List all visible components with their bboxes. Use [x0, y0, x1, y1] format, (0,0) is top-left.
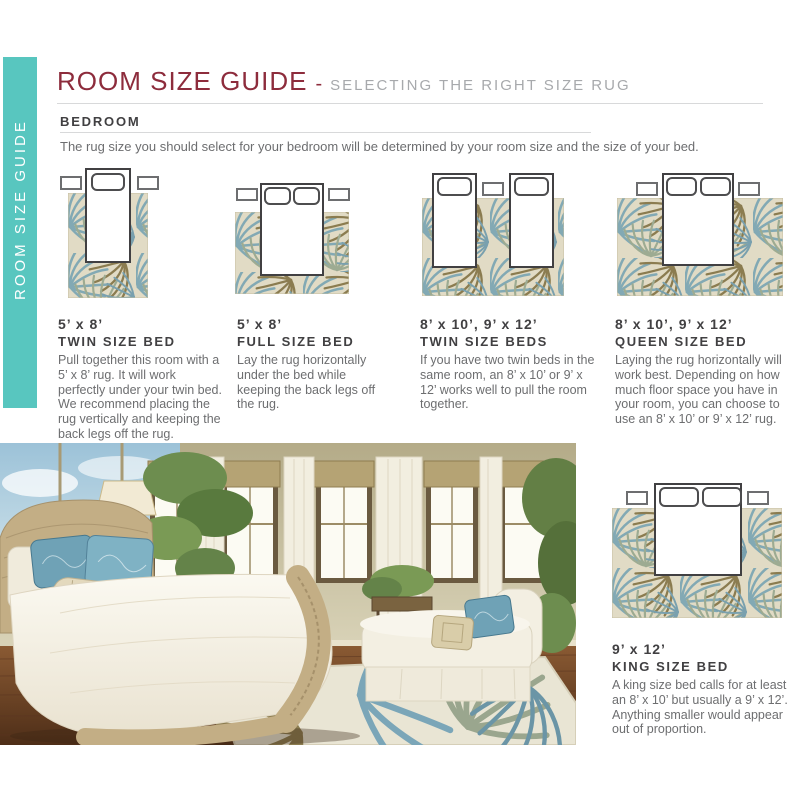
pillow-icon — [437, 177, 472, 196]
pillow-icon — [264, 187, 291, 205]
pillow-icon — [659, 487, 699, 507]
nightstand-icon — [738, 182, 760, 196]
guide-description: If you have two twin beds in the same ro… — [420, 353, 598, 412]
bed-type-label: KING SIZE BED — [612, 659, 798, 674]
rug-size-label: 9’ x 12’ — [612, 641, 798, 657]
section-divider — [60, 132, 591, 133]
nightstand-icon — [747, 491, 769, 505]
pillow-icon — [702, 487, 742, 507]
guide-description: Laying the rug horizontally will work be… — [615, 353, 797, 427]
bed-type-label: FULL SIZE BED — [237, 334, 387, 349]
page: ROOM SIZE GUIDE ROOM SIZE GUIDE - SELECT… — [0, 0, 800, 800]
nightstand-icon — [137, 176, 159, 190]
rug-size-label: 8’ x 10’, 9’ x 12’ — [420, 316, 598, 332]
guide-queen: 8’ x 10’, 9’ x 12’ QUEEN SIZE BED Laying… — [615, 316, 797, 427]
rug-size-label: 8’ x 10’, 9’ x 12’ — [615, 316, 797, 332]
bed-type-label: QUEEN SIZE BED — [615, 334, 797, 349]
side-tab-label: ROOM SIZE GUIDE — [12, 119, 29, 300]
nightstand-icon — [60, 176, 82, 190]
nightstand-icon — [236, 188, 258, 201]
pillow-icon — [666, 177, 697, 196]
pillow-icon — [514, 177, 549, 196]
guide-description: A king size bed calls for at least an 8’… — [612, 678, 798, 737]
pillow-icon — [293, 187, 320, 205]
section-heading: BEDROOM — [60, 114, 141, 129]
nightstand-icon — [626, 491, 648, 505]
page-header: ROOM SIZE GUIDE - SELECTING THE RIGHT SI… — [57, 66, 763, 97]
pillow-icon — [91, 173, 125, 191]
header-divider — [57, 103, 763, 104]
guide-king: 9’ x 12’ KING SIZE BED A king size bed c… — [612, 641, 798, 737]
rug-size-label: 5’ x 8’ — [58, 316, 226, 332]
guide-full: 5’ x 8’ FULL SIZE BED Lay the rug horizo… — [237, 316, 387, 412]
nightstand-icon — [482, 182, 504, 196]
pillow-icon — [700, 177, 731, 196]
page-subtitle: SELECTING THE RIGHT SIZE RUG — [330, 77, 630, 94]
rug-size-label: 5’ x 8’ — [237, 316, 387, 332]
bed-type-label: TWIN SIZE BED — [58, 334, 226, 349]
side-tab: ROOM SIZE GUIDE — [3, 57, 37, 408]
guide-description: Lay the rug horizontally under the bed w… — [237, 353, 387, 412]
bed-type-label: TWIN SIZE BEDS — [420, 334, 598, 349]
nightstand-icon — [636, 182, 658, 196]
guide-description: Pull together this room with a 5’ x 8’ r… — [58, 353, 226, 442]
nightstand-icon — [328, 188, 350, 201]
bedroom-photo — [0, 443, 576, 745]
title-dash: - — [315, 73, 322, 96]
guide-twin: 5’ x 8’ TWIN SIZE BED Pull together this… — [58, 316, 226, 442]
guide-twins: 8’ x 10’, 9’ x 12’ TWIN SIZE BEDS If you… — [420, 316, 598, 412]
section-intro: The rug size you should select for your … — [60, 139, 760, 154]
page-title: ROOM SIZE GUIDE — [57, 66, 307, 97]
